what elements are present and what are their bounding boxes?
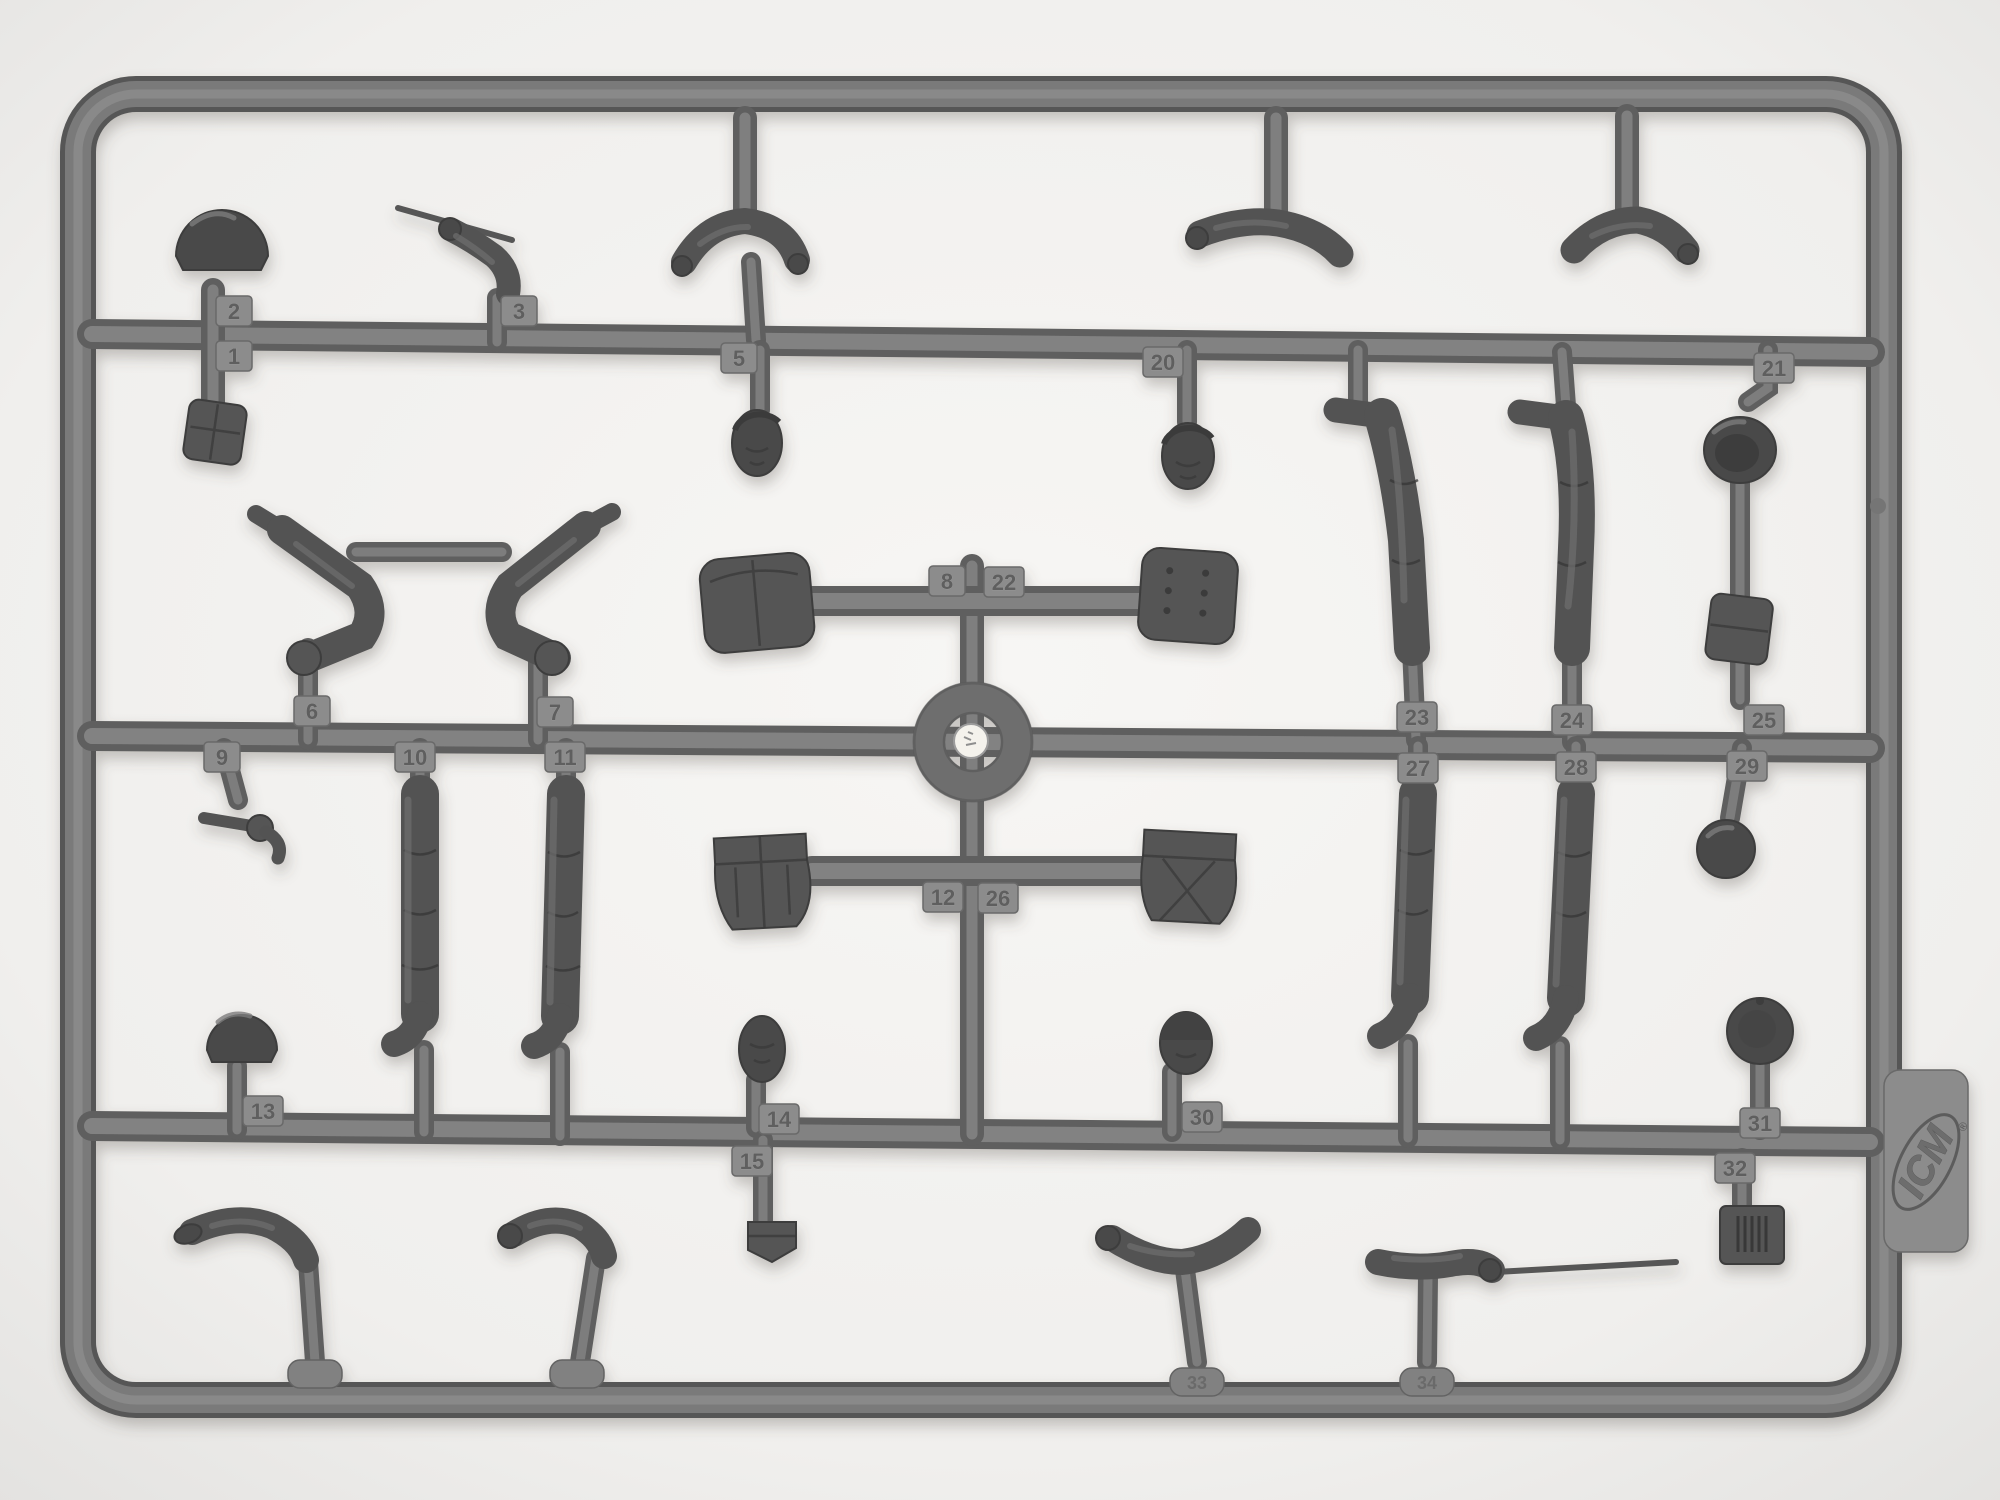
svg-text:30: 30 bbox=[1190, 1105, 1214, 1130]
svg-text:21: 21 bbox=[1762, 356, 1786, 381]
sprue-gate-nub bbox=[1870, 498, 1886, 514]
svg-text:5: 5 bbox=[733, 346, 745, 371]
svg-text:31: 31 bbox=[1748, 1111, 1772, 1136]
part-tag-6: 6 bbox=[294, 696, 330, 726]
part-tag-26: 26 bbox=[978, 883, 1018, 913]
part-torso-upper-8 bbox=[698, 551, 816, 654]
part-tag-23: 23 bbox=[1397, 702, 1437, 732]
svg-text:1: 1 bbox=[228, 344, 240, 369]
svg-text:9: 9 bbox=[216, 745, 228, 770]
part-tag-8: 8 bbox=[929, 566, 965, 596]
part-tag-14: 14 bbox=[759, 1104, 799, 1134]
svg-text:7: 7 bbox=[549, 700, 561, 725]
svg-text:32: 32 bbox=[1723, 1156, 1747, 1181]
part-tag-32: 32 bbox=[1715, 1153, 1755, 1183]
svg-text:20: 20 bbox=[1151, 350, 1175, 375]
part-tag-28: 28 bbox=[1556, 752, 1596, 782]
part-tag-13: 13 bbox=[243, 1096, 283, 1126]
frame-tab-34: 34 bbox=[1400, 1368, 1454, 1396]
part-tag-10: 10 bbox=[395, 742, 435, 772]
part-torso-lower-12 bbox=[713, 834, 813, 931]
part-tag-7: 7 bbox=[537, 697, 573, 727]
part-grate-plate-32 bbox=[1720, 1206, 1784, 1264]
part-tag-5: 5 bbox=[721, 343, 757, 373]
svg-text:33: 33 bbox=[1187, 1373, 1207, 1393]
svg-text:12: 12 bbox=[931, 885, 955, 910]
sprue-photo: 2 1 3 5 20 21 8 22 6 7 9 10 11 12 26 23 … bbox=[0, 0, 2000, 1500]
part-ball-cap-29 bbox=[1697, 820, 1755, 878]
frame-tab-unmarked-2 bbox=[550, 1360, 604, 1388]
part-torso-lower-26 bbox=[1139, 830, 1239, 925]
svg-text:22: 22 bbox=[992, 570, 1016, 595]
part-tag-25: 25 bbox=[1744, 705, 1784, 735]
part-tag-1: 1 bbox=[216, 341, 252, 371]
part-tag-11: 11 bbox=[545, 742, 585, 772]
part-torso-upper-22 bbox=[1137, 547, 1239, 645]
runner-horizontal-top bbox=[92, 334, 1870, 352]
svg-text:28: 28 bbox=[1564, 755, 1588, 780]
part-tag-2: 2 bbox=[216, 296, 252, 326]
part-tag-15: 15 bbox=[732, 1146, 772, 1176]
svg-text:10: 10 bbox=[403, 745, 427, 770]
svg-text:26: 26 bbox=[986, 886, 1010, 911]
part-tag-30: 30 bbox=[1182, 1102, 1222, 1132]
svg-text:24: 24 bbox=[1560, 708, 1585, 733]
svg-text:27: 27 bbox=[1406, 756, 1430, 781]
part-tag-12: 12 bbox=[923, 882, 963, 912]
part-helmet-21 bbox=[1704, 417, 1776, 483]
brand-logo-tab: ICM ® bbox=[1880, 1070, 1973, 1252]
part-head-in-helmet-30 bbox=[1160, 1012, 1212, 1074]
part-head-5 bbox=[732, 410, 782, 476]
part-pouch-25 bbox=[1704, 593, 1774, 666]
svg-text:34: 34 bbox=[1417, 1373, 1437, 1393]
svg-text:3: 3 bbox=[513, 299, 525, 324]
sprue-center-hub bbox=[914, 683, 1032, 801]
svg-text:15: 15 bbox=[740, 1149, 764, 1174]
svg-text:14: 14 bbox=[767, 1107, 792, 1132]
frame-tab-unmarked-1 bbox=[288, 1360, 342, 1388]
svg-text:25: 25 bbox=[1752, 708, 1776, 733]
part-tag-31: 31 bbox=[1740, 1108, 1780, 1138]
part-pouch-1 bbox=[182, 398, 248, 465]
svg-text:11: 11 bbox=[553, 745, 576, 770]
part-tag-9: 9 bbox=[204, 742, 240, 772]
part-beret-31 bbox=[1727, 997, 1793, 1064]
part-tag-20: 20 bbox=[1143, 347, 1183, 377]
svg-text:13: 13 bbox=[251, 1099, 275, 1124]
part-tag-22: 22 bbox=[984, 567, 1024, 597]
hub-ejector-mark bbox=[954, 724, 988, 758]
part-tag-21: 21 bbox=[1754, 353, 1794, 383]
frame-tab-33: 33 bbox=[1170, 1368, 1224, 1396]
part-tag-3: 3 bbox=[501, 296, 537, 326]
part-head-20 bbox=[1162, 423, 1214, 489]
part-tag-29: 29 bbox=[1727, 751, 1767, 781]
part-tag-27: 27 bbox=[1398, 753, 1438, 783]
svg-text:23: 23 bbox=[1405, 705, 1429, 730]
part-tag-24: 24 bbox=[1552, 705, 1592, 735]
svg-text:29: 29 bbox=[1735, 754, 1759, 779]
svg-text:6: 6 bbox=[306, 699, 318, 724]
part-head-14 bbox=[739, 1016, 785, 1082]
svg-text:2: 2 bbox=[228, 299, 240, 324]
svg-text:8: 8 bbox=[941, 569, 953, 594]
sprue-scene: 2 1 3 5 20 21 8 22 6 7 9 10 11 12 26 23 … bbox=[0, 0, 2000, 1500]
